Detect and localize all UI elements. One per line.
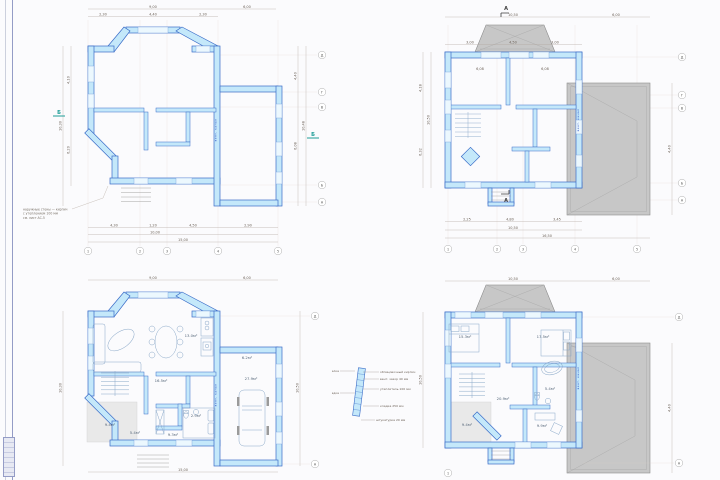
dim-label: 4,30	[110, 224, 118, 228]
room-area-label: 9.9м²	[537, 423, 548, 428]
room-area-label: 27.9м²	[245, 376, 258, 381]
axis-label: 2	[139, 249, 141, 253]
section-mark-label: Б	[57, 110, 61, 116]
axis-label: Д	[321, 53, 324, 57]
room-area-label: 17.5м²	[537, 334, 550, 339]
axis-label: 1	[447, 471, 449, 475]
legend-label: кладка 250 мм	[380, 404, 403, 408]
porch-roof	[475, 285, 555, 312]
dim-label: 4,40	[149, 13, 157, 17]
axis-label: 1	[87, 249, 89, 253]
axis-label: 5	[636, 247, 638, 251]
dim-label: 15,00	[178, 238, 188, 242]
porch-steps	[491, 451, 511, 459]
dim-label: 10,50	[508, 226, 518, 230]
section-a-label: А	[504, 6, 508, 12]
legend-label: утеплитель 100 мм	[380, 387, 411, 391]
axis-grid-lines	[88, 20, 317, 246]
axis-label: Д	[681, 55, 684, 59]
room-area-label: 9.4м²	[105, 422, 116, 427]
dim-label: 4,80	[506, 218, 514, 222]
dim-label: 6,08	[294, 142, 298, 150]
dim-label: 1,20	[149, 224, 157, 228]
dim-label: 3,00	[466, 41, 474, 45]
axis-label: Д	[314, 314, 317, 318]
legend-label: вент. зазор 40 мм	[380, 377, 408, 381]
porch-steps	[491, 192, 511, 200]
dim-label: 6,32	[419, 148, 423, 156]
dim-label: 10,48	[302, 121, 306, 131]
room-area-label: 13.0м²	[185, 333, 198, 338]
legend-svg: облицовочный кирпич вент. зазор 40 мм ут…	[332, 362, 422, 434]
dim-label: 10,30	[59, 383, 63, 393]
axis-label: 1	[447, 247, 449, 251]
axis-label: Г	[681, 93, 683, 97]
note-line: см. лист АС-5	[23, 216, 45, 220]
dim-label: 10,50	[508, 277, 518, 281]
room-area-label: 9.4м²	[462, 422, 473, 427]
dim-label: 6,20	[67, 146, 71, 154]
dim-label: 6,00	[243, 276, 251, 280]
legend-label: кладка	[332, 391, 339, 395]
dim-label: 10,50	[427, 115, 431, 125]
legend-label: штукатурка 20 мм	[376, 418, 405, 422]
room-area-label: 9.3м²	[168, 432, 179, 437]
dim-label: 3,45	[553, 218, 561, 222]
entrance-steps	[121, 188, 151, 202]
room-area-label: 2.9м²	[191, 413, 202, 418]
vent-shaft-label: вент. канал	[214, 384, 218, 407]
sheet-frame-line-inner	[12, 0, 13, 480]
dimension-lines	[63, 9, 306, 242]
plan-tr-svg: А А 10,50 6,00 3,00 4,50 3,00 6,08 6,08 …	[385, 0, 705, 260]
plan-br-svg: 15.3м² 17.5м² 20.9м² 5.4м² 9.9м² 9.4м² 1…	[385, 260, 705, 480]
room-area-label: 5.4м²	[130, 430, 141, 435]
leader-note: наружные стены — кирпич с утеплением 100…	[23, 208, 68, 220]
axis-label: 5	[277, 249, 279, 253]
room-area-label: 16.5м²	[155, 378, 168, 383]
sheet-frame-line-outer	[5, 0, 6, 480]
legend-label: облицовочный кирпич	[380, 370, 416, 374]
dim-label: 2,25	[463, 218, 471, 222]
stairs	[455, 112, 481, 138]
entrance-steps	[137, 455, 169, 467]
partitions	[94, 108, 216, 150]
dim-label: 10,30	[59, 121, 63, 131]
dim-label: 10,00	[150, 231, 160, 235]
axis-label: 4	[574, 247, 576, 251]
wall-section-legend: облицовочный кирпич вент. зазор 40 мм ут…	[332, 362, 422, 434]
room-area-label: 20.9м²	[497, 396, 510, 401]
legend-labels: облицовочный кирпич вент. зазор 40 мм ут…	[332, 369, 416, 422]
axis-bubbles	[311, 312, 319, 468]
dim-label: 4,40	[668, 145, 672, 153]
room-area-label: 15.3м²	[459, 334, 472, 339]
axis-label: 2	[496, 247, 498, 251]
dim-label: 6,08	[476, 67, 484, 71]
axis-bubbles	[84, 51, 326, 255]
section-mark-label: Б	[311, 132, 315, 138]
plan-second-floor-furnished: 15.3м² 17.5м² 20.9м² 5.4м² 9.9м² 9.4м² 1…	[385, 260, 705, 480]
dim-label: 4,10	[67, 76, 71, 84]
plan-bl-svg: 13.0м² 16.5м² 2.9м² 9.3м² 5.4м² 9.4м² 6.…	[15, 260, 345, 480]
room-area-label: 6.2м²	[242, 355, 253, 360]
room-area-label: 5.4м²	[545, 386, 556, 391]
car-wheels	[237, 397, 269, 435]
axis-labels: 1 2 3 4 5 Д Г В Б А	[87, 53, 324, 253]
dim-label: 2,30	[199, 13, 207, 17]
dim-label: 3,00	[551, 41, 559, 45]
dim-label: 6,00	[243, 5, 251, 9]
dim-label: 16,50	[542, 234, 552, 238]
dim-label: 6,00	[612, 13, 620, 17]
plan-second-floor-dimensions: А А 10,50 6,00 3,00 4,50 3,00 6,08 6,08 …	[385, 0, 705, 260]
sheet-stamp-strip	[3, 437, 15, 477]
section-a-label: А	[504, 198, 508, 204]
dim-label: 4,40	[668, 404, 672, 412]
vent-shaft-label: вент. канал	[214, 119, 218, 142]
dim-label: 2,90	[244, 224, 252, 228]
dim-label: 4,50	[509, 41, 517, 45]
axis-label: 3	[522, 247, 524, 251]
wall-sample	[353, 368, 366, 416]
plan-first-floor-dimensions: 9,00 6,00 2,30 4,40 2,30 4,30 1,20 4,50 …	[15, 0, 345, 260]
dim-label: 6,00	[612, 277, 620, 281]
plan-tl-svg: 9,00 6,00 2,30 4,40 2,30 4,30 1,20 4,50 …	[15, 0, 345, 260]
dim-label: 4,18	[419, 84, 423, 92]
legend-label: отделка	[332, 369, 339, 373]
axis-label: Д	[678, 315, 681, 319]
vent-shaft-label: вент. канал	[576, 367, 580, 390]
dim-label: 2,30	[99, 13, 107, 17]
vent-shaft-label: вент. канал	[576, 109, 580, 132]
drawing-sheet: { "colors": { "wall_fill": "#c4e8fa", "w…	[0, 0, 720, 480]
axis-label: Г	[321, 90, 323, 94]
dim-label: 4,50	[189, 224, 197, 228]
dim-label: 15,00	[178, 468, 188, 472]
dim-label: 4,40	[294, 72, 298, 80]
axis-label: 4	[217, 249, 219, 253]
dim-labels: 9,00 6,00 2,30 4,40 2,30 4,30 1,20 4,50 …	[59, 5, 306, 242]
axis-label: 3	[166, 249, 168, 253]
plan-first-floor-furnished: 13.0м² 16.5м² 2.9м² 9.3м² 5.4м² 9.4м² 6.…	[15, 260, 345, 480]
dim-label: 6,08	[541, 67, 549, 71]
dim-label: 10,50	[296, 383, 300, 393]
dim-label: 9,00	[149, 5, 157, 9]
dim-label: 10,50	[508, 13, 518, 17]
windows	[445, 52, 582, 188]
dim-label: 9,00	[149, 276, 157, 280]
porch-roof	[475, 25, 555, 52]
